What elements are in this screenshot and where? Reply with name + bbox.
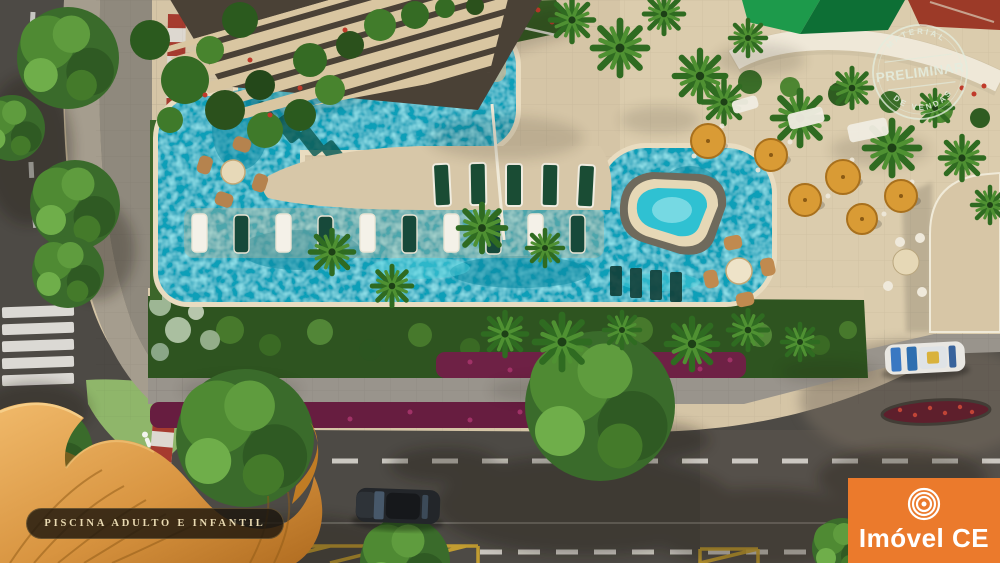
aerial-render-image: PISCINA ADULTO E INFANTIL MATERIAL DE VE… <box>0 0 1000 563</box>
concentric-circles-icon <box>905 485 943 523</box>
stamp-arc-top: MATERIAL <box>883 23 949 51</box>
suv-car <box>351 487 444 532</box>
preliminary-stamp: MATERIAL DE VENDAS PRELIMINAR <box>856 16 986 128</box>
brand-name: Imóvel CE <box>848 523 1000 554</box>
svg-text:MATERIAL: MATERIAL <box>883 23 949 51</box>
balcony-table <box>893 249 919 275</box>
image-caption: PISCINA ADULTO E INFANTIL <box>26 508 284 539</box>
stamp-center-text: PRELIMINAR <box>875 60 965 86</box>
brand-logo: Imóvel CE <box>848 478 1000 563</box>
taxi-car <box>880 341 970 383</box>
